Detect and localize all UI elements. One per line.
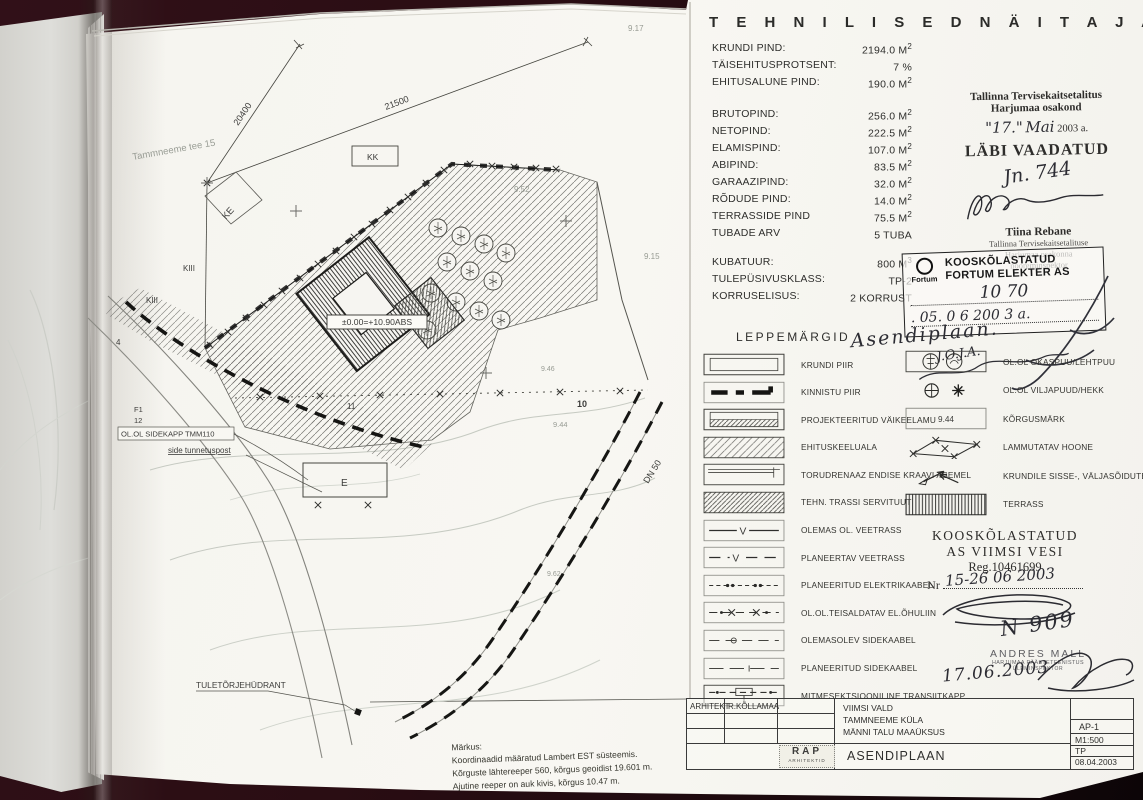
- tech-row: KUBATUUR:800 M3: [712, 256, 912, 273]
- tech-row: EHITUSALUNE PIND:190.0 M2: [712, 76, 912, 93]
- legend-item: TERRASS: [905, 493, 1143, 516]
- tech-row: KRUNDI PIND:2194.0 M2: [712, 42, 912, 59]
- tech-row: GARAAZIPIND:32.0 M2: [712, 176, 912, 193]
- kiii-label-a: KIII: [183, 264, 195, 273]
- legend-title: LEPPEMÄRGID: [736, 330, 850, 344]
- tech-row: TULEPÜSIVUSKLASS:TP-2: [712, 273, 912, 290]
- drawing-title: ASENDIPLAAN: [847, 749, 946, 763]
- leader-lines: [196, 433, 358, 713]
- elektrikaabel-symbol: [703, 574, 785, 597]
- legend-item: KINNISTU PIIR: [703, 381, 903, 404]
- legend-item: TEHN. TRASSI SERVITUUT: [703, 491, 903, 514]
- legend-item: PLANEERITUD SIDEKAABEL: [703, 657, 903, 680]
- sidekapp-label: OL.OL SIDEKAPP TMM110: [121, 430, 214, 439]
- n12-label: 12: [134, 416, 142, 425]
- drawing-scale: M1:500: [1075, 735, 1104, 745]
- n11-label: 11: [347, 402, 356, 411]
- rap-logo: RAP ARHITEKTID: [779, 745, 835, 768]
- vaikeelamu-symbol: [703, 408, 785, 431]
- ehituskeeluala-symbol: [703, 436, 785, 459]
- spot-917: 9.17: [628, 24, 644, 33]
- legend-item: 9.44 KÕRGUSMÄRK: [905, 407, 1143, 430]
- kinnistu-piir-symbol: [703, 381, 785, 404]
- scanned-binder-photo: ±0.00=+10.90ABS E Tammneeme tee 15 21500…: [0, 0, 1143, 800]
- legend-item: KRUNDILE SISSE-, VÄLJASÕIDUTEE: [905, 464, 1143, 487]
- legend-right-column: OL.OL OKASPUU/LEHTPUU OL.OL VILJAPUUD/HE…: [905, 350, 1143, 521]
- torudrenaaz-symbol: [703, 463, 785, 486]
- mall-signature: [1028, 640, 1138, 698]
- legend-item: EHITUSKEELUALA: [703, 436, 903, 459]
- tech-row: KORRUSELISUS:2 KORRUST: [712, 290, 912, 307]
- legend-item: OL.OL OKASPUU/LEHTPUU: [905, 350, 1143, 373]
- legend-item: V PLANEERTAV VEETRASS: [703, 546, 903, 569]
- role-label: ARHITEKT: [690, 702, 730, 711]
- veetrass-symbol: V: [703, 519, 785, 542]
- legend-item: LAMMUTATAV HOONE: [905, 436, 1143, 459]
- f1-label: F1: [134, 405, 143, 414]
- sissesoidutee-symbol: [905, 464, 987, 487]
- building-elevation-label: ±0.00=+10.90ABS: [342, 317, 412, 327]
- ohuliin-symbol: [703, 601, 785, 624]
- hydrant-label: TULETÕRJEHÜDRANT: [196, 680, 286, 690]
- veetrass-glyph: V: [740, 526, 747, 537]
- location-line1: VIIMSI VALD: [843, 703, 893, 713]
- tech-row: BRUTOPIND:256.0 M2: [712, 108, 912, 125]
- okaspuu-lehtpuu-symbol: [905, 350, 987, 373]
- viimsi-vesi-stamp: KOOSKÕLASTATUD AS VIIMSI VESI Reg.104616…: [898, 528, 1112, 593]
- spot-952: 9.52: [514, 185, 530, 194]
- dn50-label: DN 50: [641, 458, 663, 485]
- viljapuud-hekk-symbol: [905, 379, 987, 402]
- tech-row: TUBADE ARV5 TUBA: [712, 227, 912, 244]
- architect-name: R.KÕLLAMAA: [728, 702, 779, 711]
- location-line3: MÄNNI TALU MAAÜKSUS: [843, 727, 945, 737]
- spot-946: 9.46: [541, 366, 555, 373]
- n4-label: 4: [116, 338, 121, 347]
- legend-item: OL.OL.TEISALDATAV EL.ÕHULIIN: [703, 601, 903, 624]
- legend-item: OL.OL VILJAPUUD/HEKK: [905, 379, 1143, 402]
- tech-row: NETOPIND:222.5 M2: [712, 125, 912, 142]
- sidekaabel-plan-symbol: [703, 657, 785, 680]
- legend-item: V OLEMAS OL. VEETRASS: [703, 519, 903, 542]
- veetrass-plan-glyph: V: [732, 554, 739, 565]
- tech-row: RÕDUDE PIND:14.0 M2: [712, 193, 912, 210]
- drawing-date: 08.04.2003: [1075, 757, 1117, 767]
- project-stage: TP: [1075, 746, 1086, 756]
- tech-row: TÄISEHITUSPROTSENT:7 %: [712, 59, 912, 76]
- korgusmark-glyph: 9.44: [938, 415, 954, 424]
- tech-data-table: KRUNDI PIND:2194.0 M2 TÄISEHITUSPROTSENT…: [712, 42, 912, 307]
- korgusmark-symbol: 9.44: [905, 407, 987, 430]
- servituut-symbol: [703, 491, 785, 514]
- fortum-logo-icon: Fortum: [909, 257, 940, 284]
- terrass-symbol: [905, 493, 987, 516]
- legend-item: PROJEKTEERITUD VÄIKEELAMU: [703, 408, 903, 431]
- sidekaabel-symbol: [703, 629, 785, 652]
- legend-item: PLANEERITUD ELEKTRIKAABEL: [703, 574, 903, 597]
- tunnetuspost-label: side tunnetuspost: [168, 446, 231, 455]
- title-block: ARHITEKT R.KÕLLAMAA VIIMSI VALD TAMMNEEM…: [686, 698, 1134, 770]
- tech-row: TERRASSIDE PIND75.5 M2: [712, 210, 912, 227]
- legend-item: OLEMASOLEV SIDEKAABEL: [703, 629, 903, 652]
- legend-left-column: KRUNDI PIIR KINNISTU PIIR PROJEKTEERITUD…: [703, 353, 903, 712]
- lammutatav-hoone-symbol: [905, 436, 987, 459]
- footnote: Märkus: Koordinaadid määratud Lambert ES…: [451, 733, 703, 794]
- tech-row: ABIPIND:83.5 M2: [712, 159, 912, 176]
- sheet-code: AP-1: [1079, 722, 1099, 732]
- legend-item: KRUNDI PIIR: [703, 353, 903, 376]
- tech-data-title: T E H N I L I S E D N Ä I T A J A D :: [709, 14, 1143, 31]
- stamp-day-hand: "17.": [985, 118, 1023, 137]
- building-e-label: E: [341, 478, 348, 489]
- dim-20400: 20400: [231, 101, 253, 127]
- tervisekaitse-stamp: Tallinna Tervisekaitsetalitus Harjumaa o…: [933, 88, 1141, 273]
- street-label: Tammneeme tee 15: [132, 138, 217, 163]
- veetrass-plan-symbol: V: [703, 546, 785, 569]
- tech-row: ELAMISPIND:107.0 M2: [712, 142, 912, 159]
- spot-962: 9.62: [547, 571, 561, 578]
- location-line2: TAMMNEEME KÜLA: [843, 715, 923, 725]
- spot-944: 9.44: [553, 420, 568, 429]
- stamp-month-hand: Mai: [1025, 118, 1054, 137]
- kk-label: KK: [367, 152, 379, 162]
- kiii-label-b: KIII: [146, 296, 158, 305]
- spot-915: 9.15: [644, 252, 660, 261]
- krundi-piir-symbol: [703, 353, 785, 376]
- legend-item: TORUDRENAAZ ENDISE KRAAVI ASEMEL: [703, 463, 903, 486]
- n10-label: 10: [577, 399, 587, 409]
- ke-label: KE: [220, 205, 237, 222]
